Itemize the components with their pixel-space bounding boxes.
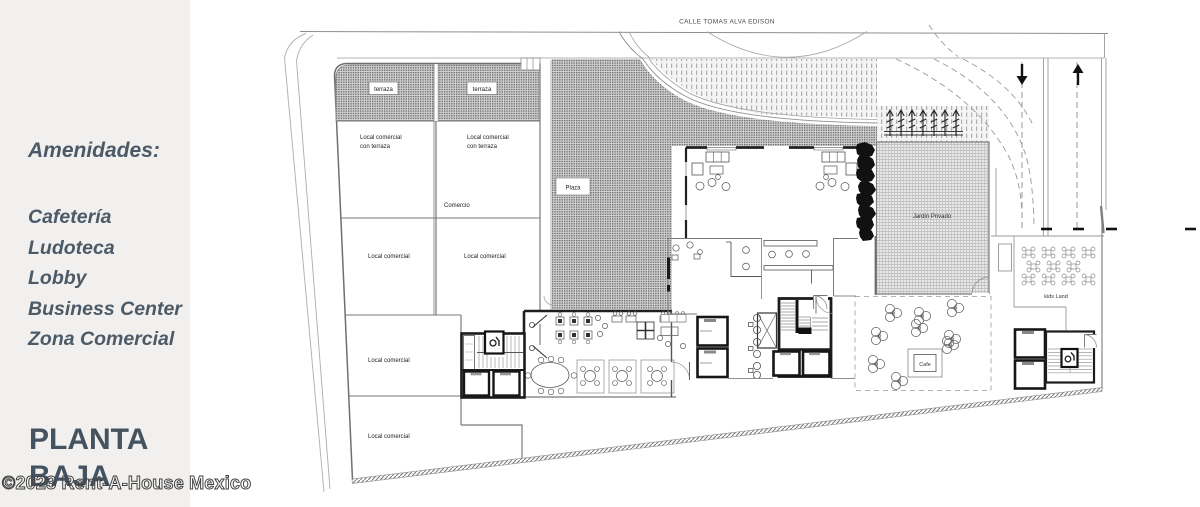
svg-text:Plaza: Plaza <box>565 186 581 192</box>
svg-text:Local comercial: Local comercial <box>467 135 509 141</box>
svg-text:Local comercial: Local comercial <box>360 135 402 141</box>
svg-text:Comercio: Comercio <box>444 203 470 209</box>
svg-text:kids Land: kids Land <box>1044 294 1068 300</box>
svg-text:CALLE TOMAS ALVA EDISON: CALLE TOMAS ALVA EDISON <box>679 19 775 26</box>
svg-text:terraza: terraza <box>473 87 492 93</box>
svg-text:con terraza: con terraza <box>467 144 498 150</box>
svg-text:con terraza: con terraza <box>360 144 391 150</box>
svg-text:Local comercial: Local comercial <box>464 254 506 260</box>
svg-text:Local comercial: Local comercial <box>368 358 410 364</box>
svg-text:terraza: terraza <box>374 87 393 93</box>
svg-text:Cafe: Cafe <box>919 362 931 368</box>
svg-text:Local comercial: Local comercial <box>368 254 410 260</box>
svg-text:Jardin Privado: Jardin Privado <box>913 214 952 220</box>
svg-text:Local comercial: Local comercial <box>368 434 410 440</box>
